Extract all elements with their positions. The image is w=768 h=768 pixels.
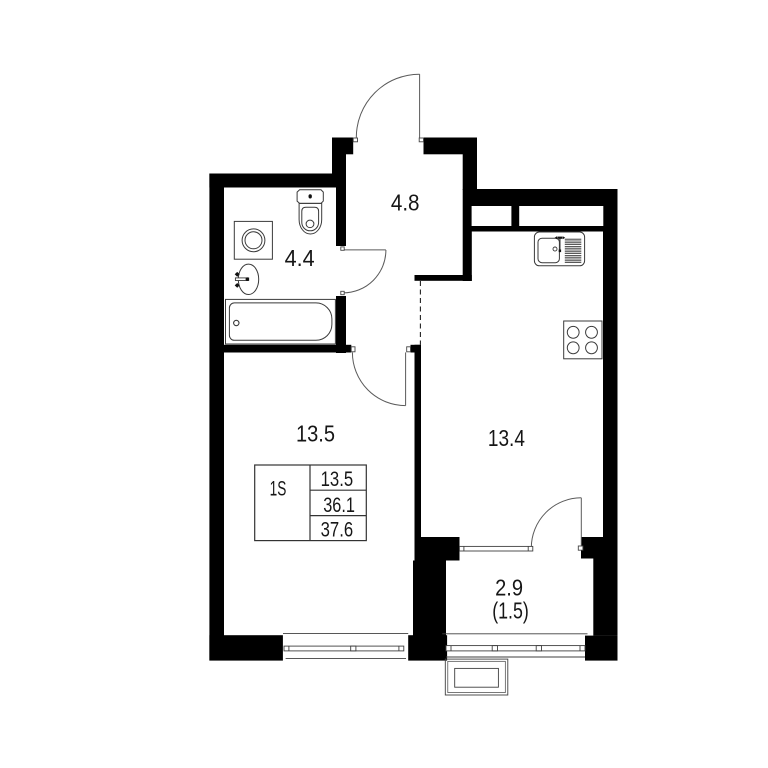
- svg-text:37.6: 37.6: [321, 517, 354, 542]
- svg-text:(1.5): (1.5): [492, 598, 529, 624]
- svg-text:1S: 1S: [270, 475, 287, 500]
- svg-text:4.8: 4.8: [391, 189, 420, 215]
- svg-text:13.5: 13.5: [321, 466, 354, 491]
- svg-text:13.4: 13.4: [488, 425, 525, 451]
- svg-text:4.4: 4.4: [285, 245, 315, 271]
- svg-text:13.5: 13.5: [296, 421, 335, 447]
- svg-text:36.1: 36.1: [323, 492, 355, 517]
